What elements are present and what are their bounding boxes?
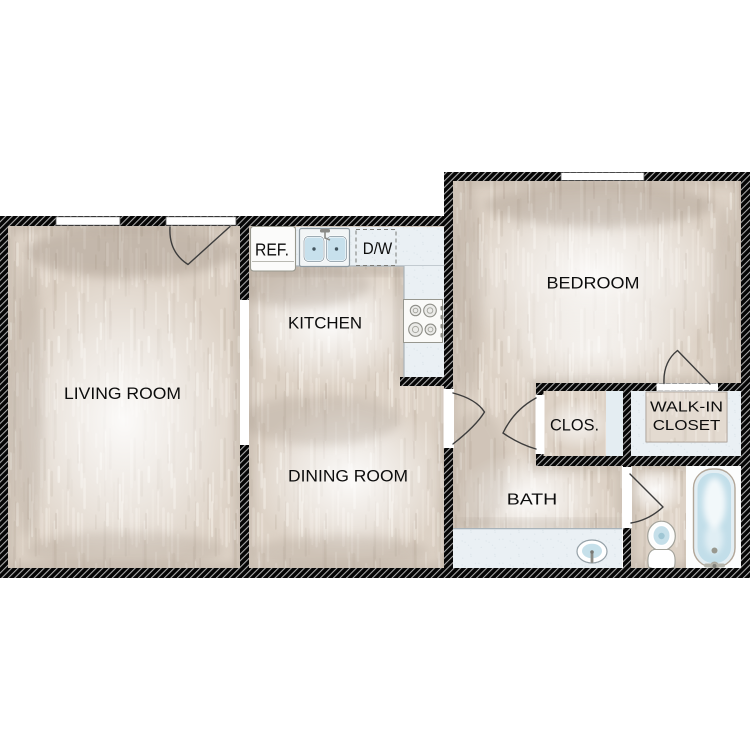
svg-text:KITCHEN: KITCHEN: [288, 313, 362, 332]
svg-text:LIVING ROOM: LIVING ROOM: [64, 384, 181, 403]
svg-text:REF.: REF.: [255, 240, 289, 260]
svg-text:CLOSET: CLOSET: [653, 418, 721, 434]
svg-text:BATH: BATH: [507, 492, 558, 509]
svg-text:D/W: D/W: [363, 240, 393, 258]
svg-text:WALK-IN: WALK-IN: [650, 400, 723, 416]
svg-text:BEDROOM: BEDROOM: [547, 274, 640, 293]
svg-text:DINING ROOM: DINING ROOM: [288, 467, 408, 486]
svg-text:CLOS.: CLOS.: [550, 417, 599, 435]
